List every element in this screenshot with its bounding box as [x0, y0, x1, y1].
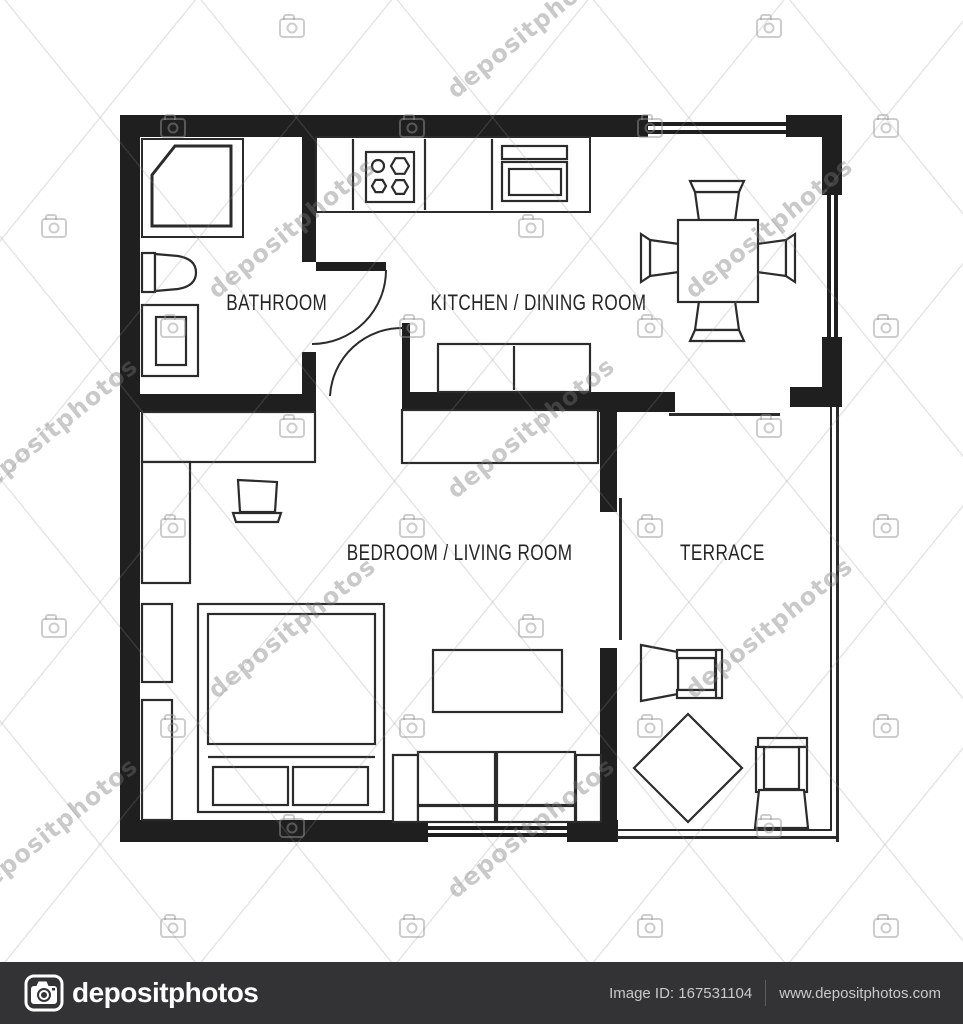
oven-sink-unit [502, 146, 567, 201]
nightstand-lower [142, 700, 172, 820]
depositphotos-camera-icon [24, 974, 64, 1012]
footer-logo: depositphotos [24, 974, 258, 1012]
stock-floorplan-image: BATHROOM KITCHEN / DINING ROOM BEDROOM /… [0, 0, 963, 1024]
pillow [293, 767, 368, 805]
dining-chair-top [690, 181, 744, 221]
room-label-bathroom: BATHROOM [177, 290, 377, 316]
wardrobe-top [142, 412, 315, 462]
nightstand-upper [142, 604, 172, 682]
dining-chair-right [757, 234, 795, 282]
kitchen-bench [438, 344, 590, 392]
furniture-layer [0, 0, 963, 1024]
dresser [402, 410, 598, 463]
footer-bar: depositphotos Image ID: 167531104 www.de… [0, 962, 963, 1024]
room-label-kitchen-dining: KITCHEN / DINING ROOM [400, 290, 650, 316]
footer-website: www.depositphotos.com [779, 985, 941, 1002]
stove [366, 152, 414, 202]
terrace-table [634, 714, 742, 822]
terrace-armchair-right [755, 738, 808, 828]
sofa [393, 752, 601, 822]
terrace-armchair-left [641, 645, 722, 701]
shower [142, 139, 243, 237]
footer-image-id: Image ID: 167531104 [609, 985, 752, 1002]
wardrobe-side [142, 462, 190, 583]
dining-chair-bottom [690, 301, 744, 341]
coffee-table [433, 650, 562, 712]
footer-divider [765, 980, 766, 1006]
dining-chair-left [641, 234, 679, 282]
toilet [142, 253, 196, 292]
footer-brand: depositphotos [72, 977, 258, 1009]
bed [198, 604, 384, 812]
desk-chair [233, 480, 281, 522]
room-label-terrace: TERRACE [647, 540, 797, 566]
footer-meta: Image ID: 167531104 www.depositphotos.co… [609, 962, 941, 1024]
pillow [213, 767, 288, 805]
room-label-bedroom-living: BEDROOM / LIVING ROOM [315, 540, 565, 566]
dining-table [678, 220, 758, 302]
